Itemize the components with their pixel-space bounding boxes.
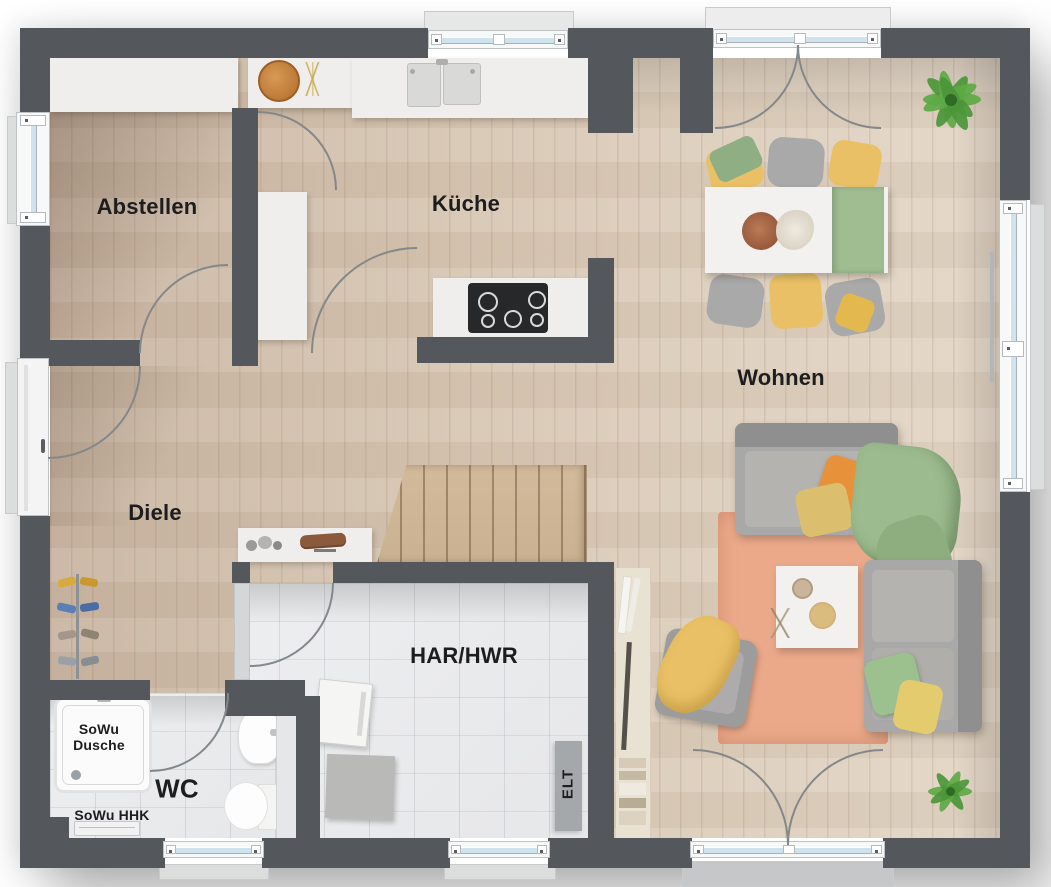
- floor-plan: Abstellen Küche Wohnen Diele HAR/HWR WC …: [0, 0, 1051, 887]
- room-label-wc: WC: [155, 774, 199, 805]
- room-label-diele: Diele: [128, 500, 182, 526]
- room-label-har-hwr: HAR/HWR: [410, 643, 518, 669]
- room-label-kueche: Küche: [432, 191, 500, 217]
- radiator-label: SoWu HHK: [74, 807, 149, 823]
- shower-label: SoWu Dusche: [73, 721, 125, 753]
- room-label-abstellen: Abstellen: [97, 194, 198, 220]
- room-label-wohnen: Wohnen: [737, 365, 825, 391]
- door-swing-arcs: [0, 0, 1051, 887]
- elt-label: ELT: [560, 769, 577, 799]
